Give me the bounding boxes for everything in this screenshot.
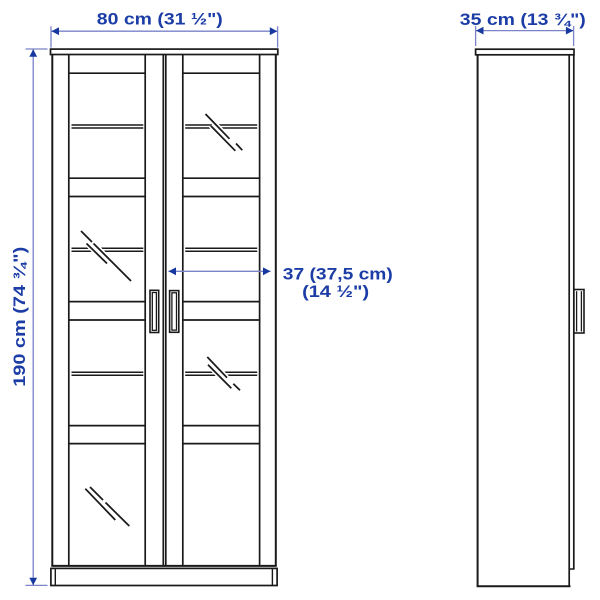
svg-text:37 (37,5 cm): 37 (37,5 cm) [283,266,393,284]
svg-text:(14 ½"): (14 ½") [302,283,369,301]
svg-text:80 cm (31 ½"): 80 cm (31 ½") [97,10,223,28]
svg-text:35 cm (13 ¾"): 35 cm (13 ¾") [460,11,586,29]
svg-text:190 cm (74 ¾"): 190 cm (74 ¾") [11,247,29,387]
